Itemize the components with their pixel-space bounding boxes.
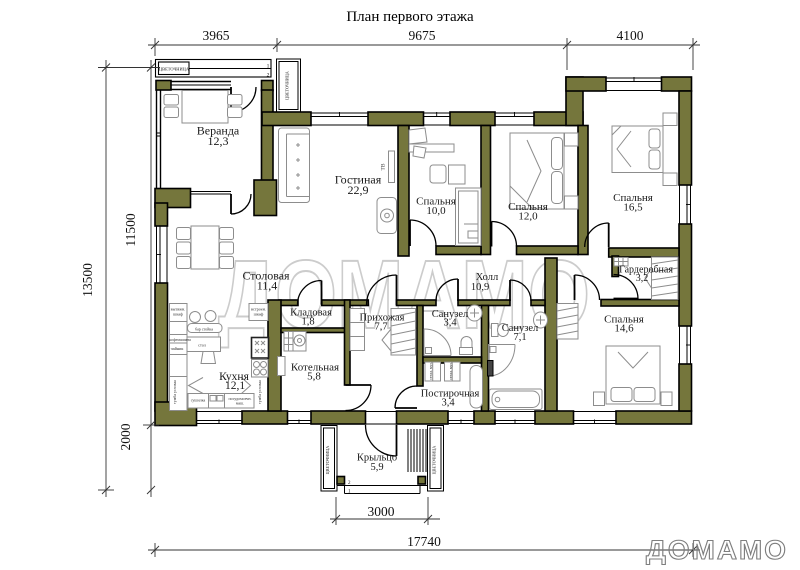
svg-text:ЦВЕТОЧНИЦА: ЦВЕТОЧНИЦА [432,446,437,475]
svg-text:тумба угловая: тумба угловая [257,380,262,404]
svg-text:7,1: 7,1 [513,332,526,343]
svg-text:7,7: 7,7 [374,322,387,333]
svg-text:14,6: 14,6 [614,323,634,335]
svg-text:9675: 9675 [409,28,436,43]
svg-text:4100: 4100 [617,28,644,43]
svg-text:тумба угловая: тумба угловая [172,380,177,404]
svg-text:10,0: 10,0 [426,205,446,217]
svg-text:2: 2 [267,73,270,79]
svg-text:10,9: 10,9 [471,282,489,293]
svg-text:11,4: 11,4 [257,279,278,293]
svg-text:2000: 2000 [118,423,133,450]
svg-text:шкаф: шкаф [173,312,183,317]
svg-text:3965: 3965 [203,28,230,43]
svg-text:бар стойка: бар стойка [195,327,213,332]
svg-text:12,1: 12,1 [225,380,245,392]
svg-text:ТВ: ТВ [381,163,387,170]
svg-text:5,8: 5,8 [307,371,321,383]
svg-text:3,2: 3,2 [636,273,649,284]
svg-text:5,9: 5,9 [370,462,383,473]
svg-text:1: 1 [267,64,270,70]
svg-text:стелл. муз.: стелл. муз. [429,362,433,380]
svg-text:12,0: 12,0 [518,211,538,223]
svg-text:сушилка: сушилка [191,398,206,403]
svg-text:ДОМАМО: ДОМАМО [646,535,788,565]
svg-text:шкаф: шкаф [254,312,264,317]
svg-text:3,4: 3,4 [441,398,455,409]
svg-text:ЦВЕТОЧНИЦА: ЦВЕТОЧНИЦА [285,71,290,100]
svg-text:13500: 13500 [80,263,95,297]
svg-text:3,4: 3,4 [443,318,457,329]
svg-text:ЦВЕТОЧНИЦА: ЦВЕТОЧНИЦА [159,67,190,72]
svg-text:3000: 3000 [368,504,395,519]
svg-text:стол: стол [198,343,206,348]
svg-text:План первого этажа: План первого этажа [346,9,474,25]
svg-text:22,9: 22,9 [348,183,369,197]
svg-text:11500: 11500 [123,213,138,246]
svg-text:17740: 17740 [407,534,441,549]
svg-text:16,5: 16,5 [623,202,643,214]
svg-text:кофемашина: кофемашина [169,337,191,342]
svg-text:стелл. муз.: стелл. муз. [449,362,453,380]
svg-text:ЦВЕТОЧНИЦА: ЦВЕТОЧНИЦА [325,446,330,475]
svg-text:12,3: 12,3 [208,134,229,148]
svg-text:чайник: чайник [171,346,185,351]
svg-text:маш.: маш. [236,401,244,406]
svg-text:1,8: 1,8 [301,317,314,328]
